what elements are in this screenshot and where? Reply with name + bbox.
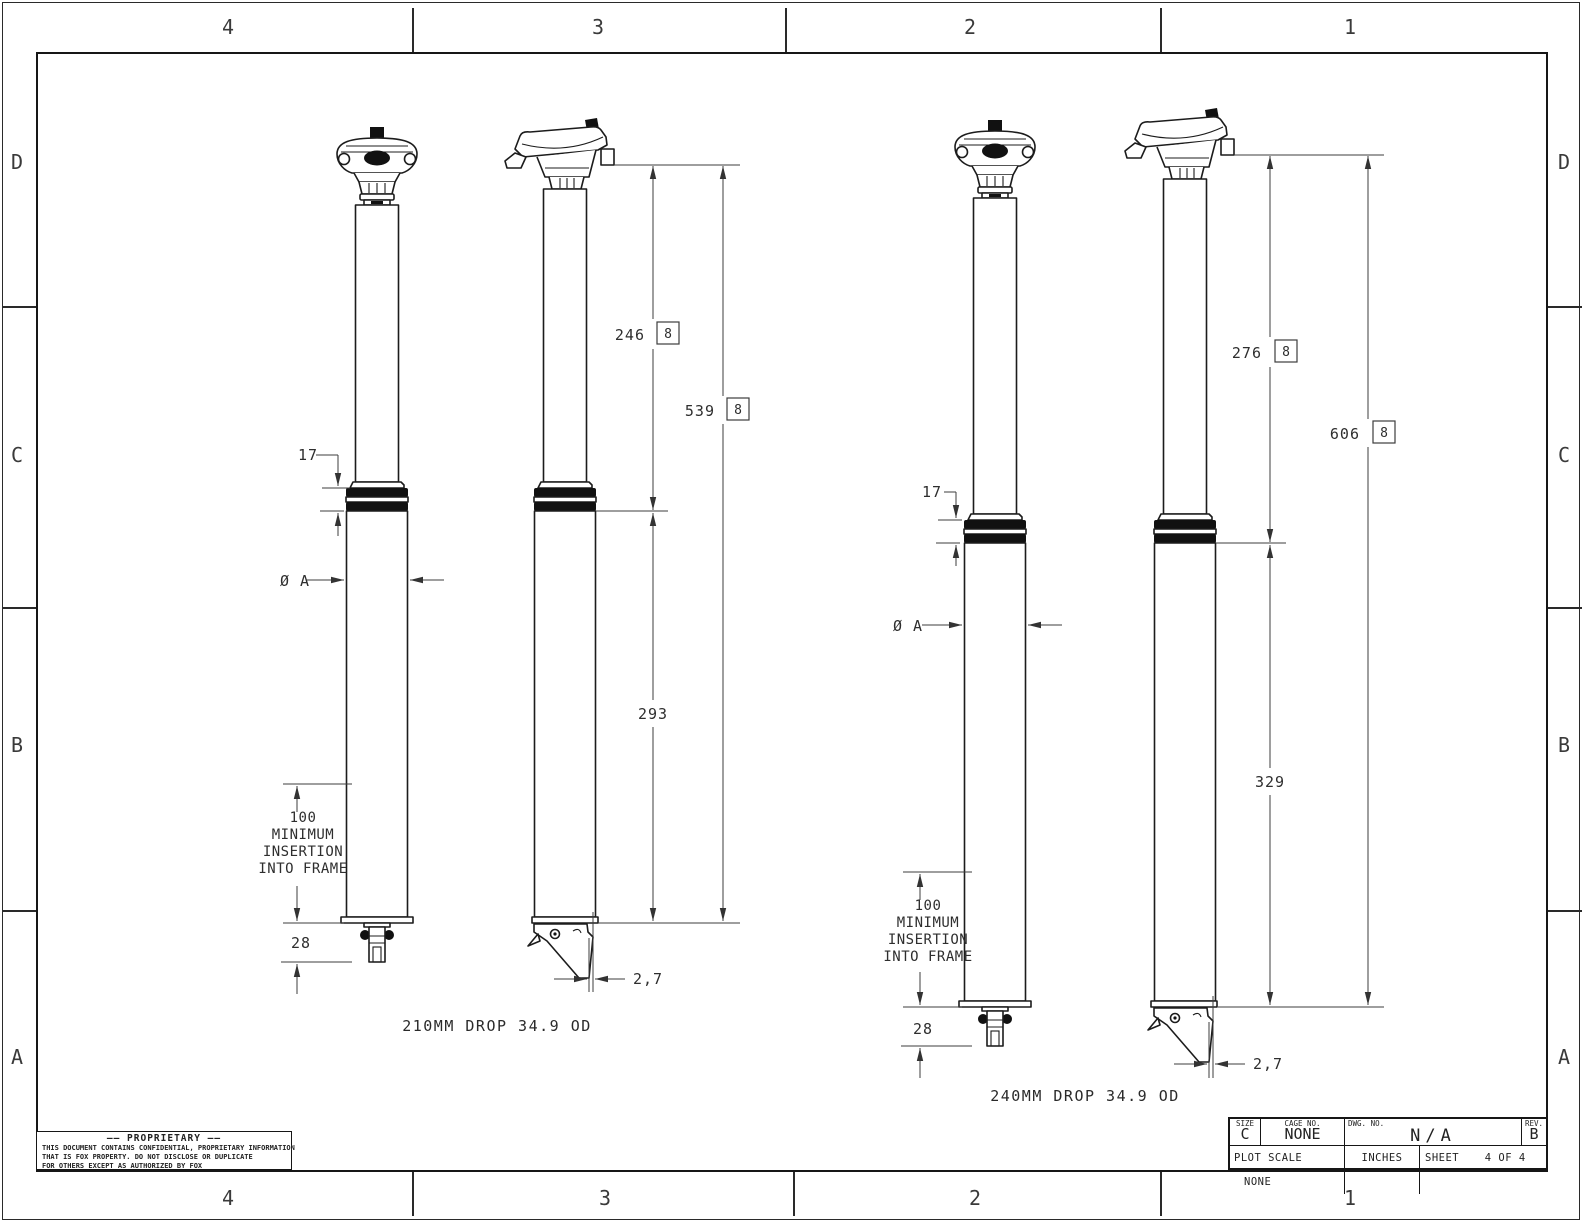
view-240-side bbox=[1125, 108, 1234, 1062]
insertion-note-line: INSERTION bbox=[263, 844, 343, 860]
dim-texts-210: 246 8 539 8 293 17 Ø A 100 MINIMUM INSER… bbox=[258, 322, 749, 1035]
dim-diameter-240: Ø A bbox=[893, 617, 923, 635]
insertion-note-line: MINIMUM bbox=[897, 915, 960, 931]
insertion-note-line: 100 bbox=[915, 898, 942, 914]
cage-value: NONE bbox=[1261, 1128, 1344, 1141]
title-block: SIZE C CAGE NO. NONE DWG. NO. N/A REV. B… bbox=[1228, 1117, 1548, 1170]
insertion-note-line: 100 bbox=[290, 810, 317, 826]
plot-scale-label: PLOT SCALE bbox=[1230, 1152, 1302, 1164]
sheet-value: 4 OF 4 bbox=[1469, 1152, 1526, 1164]
insertion-note-line: INTO FRAME bbox=[883, 949, 972, 965]
dim-upper-flag-240: 8 bbox=[1282, 345, 1290, 360]
caption-210: 210MM DROP 34.9 OD bbox=[402, 1017, 592, 1035]
dim-upper-flag-210: 8 bbox=[664, 327, 672, 342]
dim-total-210: 539 bbox=[685, 402, 715, 420]
dim-upper-240: 276 bbox=[1232, 344, 1262, 362]
proprietary-line: THAT IS FOX PROPERTY. DO NOT DISCLOSE OR… bbox=[37, 1153, 291, 1162]
dim-lever-offset-240: 2,7 bbox=[1253, 1055, 1283, 1073]
insertion-note-line: INSERTION bbox=[888, 932, 968, 948]
view-240-front bbox=[955, 120, 1035, 1046]
insertion-note-line: INTO FRAME bbox=[258, 861, 347, 877]
view-210-front bbox=[337, 127, 417, 962]
dim-texts-240: 276 8 606 8 329 17 Ø A 100 MINIMUM INSER… bbox=[883, 340, 1395, 1105]
dim-collar-240: 17 bbox=[922, 483, 942, 501]
title-block-plot-scale-cell: PLOT SCALE NONE bbox=[1230, 1146, 1345, 1194]
title-block-size-cell: SIZE C bbox=[1230, 1119, 1261, 1145]
dim-upper-210: 246 bbox=[615, 326, 645, 344]
plot-scale-value: NONE bbox=[1230, 1176, 1271, 1188]
title-block-sheet-cell: SHEET 4 OF 4 bbox=[1420, 1146, 1546, 1194]
dim-diameter-210: Ø A bbox=[280, 572, 310, 590]
dim-total-flag-210: 8 bbox=[734, 403, 742, 418]
drawing-canvas: 246 8 539 8 293 17 Ø A 100 MINIMUM INSER… bbox=[0, 0, 1584, 1224]
title-block-units-cell: INCHES bbox=[1345, 1146, 1420, 1194]
title-block-rev-cell: REV. B bbox=[1522, 1119, 1546, 1145]
proprietary-line: FOR OTHERS EXCEPT AS AUTHORIZED BY FOX bbox=[37, 1162, 291, 1171]
dwg-value: N/A bbox=[1345, 1126, 1521, 1145]
title-block-cage-cell: CAGE NO. NONE bbox=[1261, 1119, 1345, 1145]
dim-lever-offset-210: 2,7 bbox=[633, 970, 663, 988]
sheet-label: SHEET bbox=[1420, 1152, 1459, 1164]
units-value: INCHES bbox=[1362, 1152, 1403, 1164]
proprietary-line: THIS DOCUMENT CONTAINS CONFIDENTIAL, PRO… bbox=[37, 1144, 291, 1153]
caption-240: 240MM DROP 34.9 OD bbox=[990, 1087, 1180, 1105]
view-210-side bbox=[505, 118, 614, 978]
dim-lower-240: 329 bbox=[1255, 773, 1285, 791]
insertion-note-line: MINIMUM bbox=[272, 827, 335, 843]
dim-total-flag-240: 8 bbox=[1380, 426, 1388, 441]
size-value: C bbox=[1230, 1128, 1260, 1141]
dim-collar-210: 17 bbox=[298, 446, 318, 464]
dim-below-insertion-210: 28 bbox=[291, 934, 311, 952]
proprietary-notice: —— PROPRIETARY —— THIS DOCUMENT CONTAINS… bbox=[36, 1131, 292, 1170]
dim-below-insertion-240: 28 bbox=[913, 1020, 933, 1038]
drawing-sheet: 4 3 2 1 4 3 2 1 D C B A D C B A bbox=[0, 0, 1584, 1224]
rev-value: B bbox=[1522, 1128, 1546, 1141]
proprietary-title: —— PROPRIETARY —— bbox=[37, 1133, 291, 1144]
title-block-dwg-cell: DWG. NO. N/A bbox=[1345, 1119, 1522, 1145]
dim-lower-210: 293 bbox=[638, 705, 668, 723]
dim-total-240: 606 bbox=[1330, 425, 1360, 443]
